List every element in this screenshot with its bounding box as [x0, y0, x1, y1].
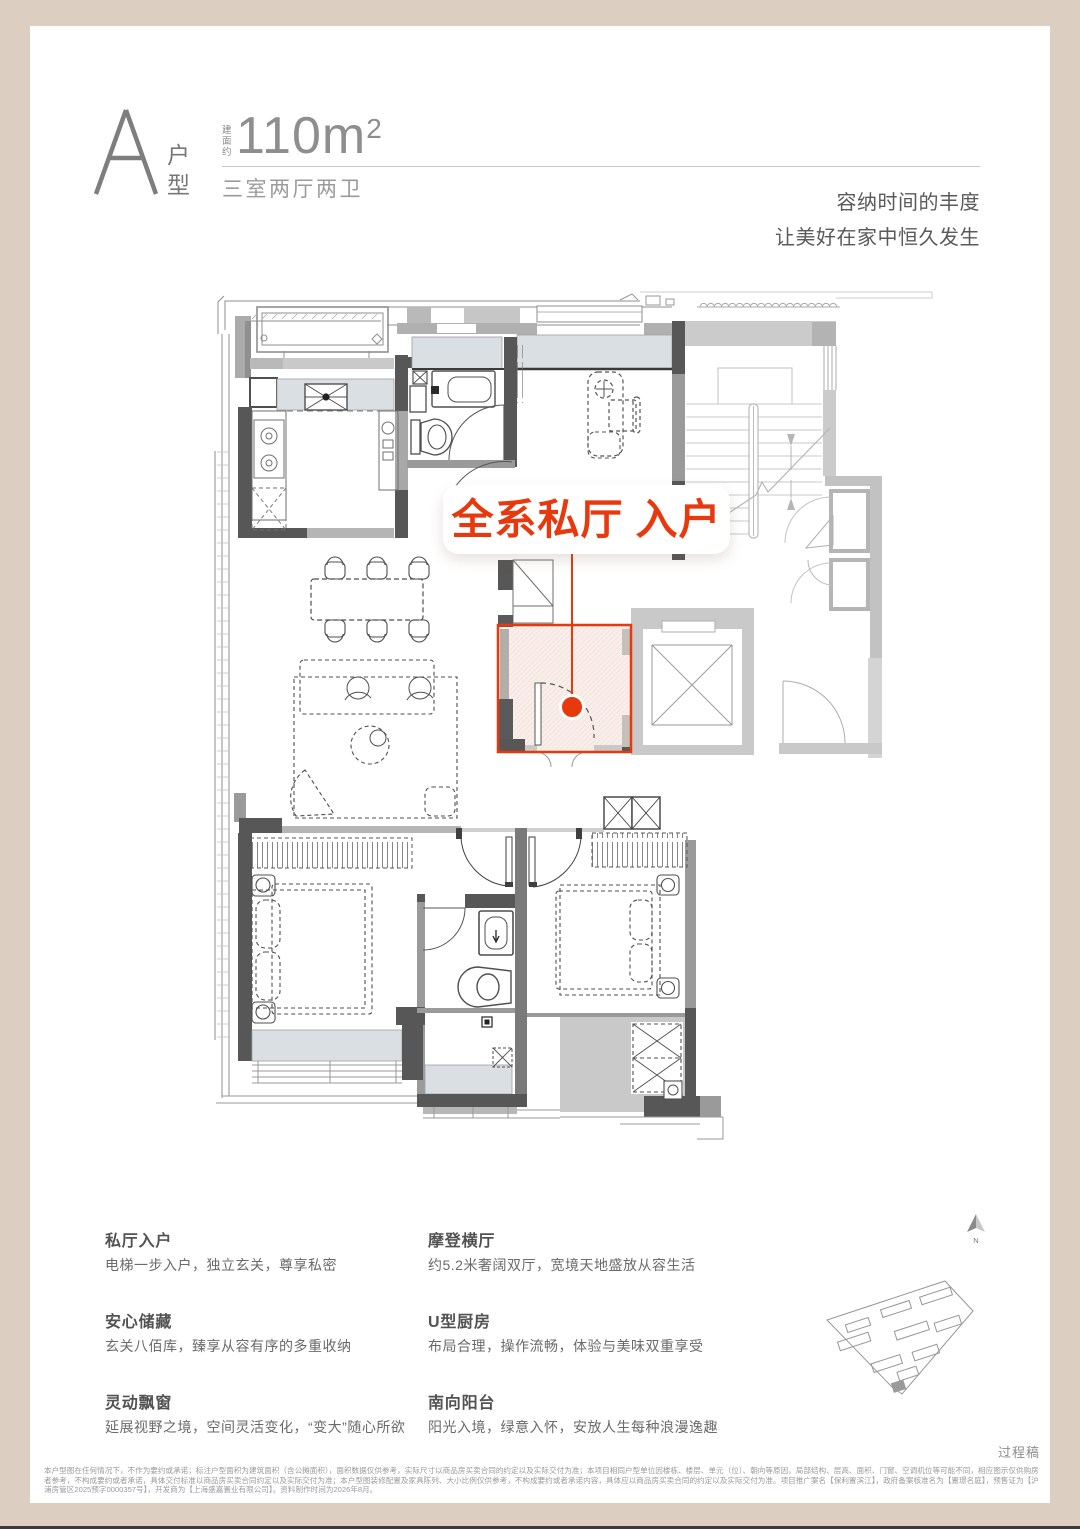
svg-text:N: N — [973, 1236, 978, 1245]
